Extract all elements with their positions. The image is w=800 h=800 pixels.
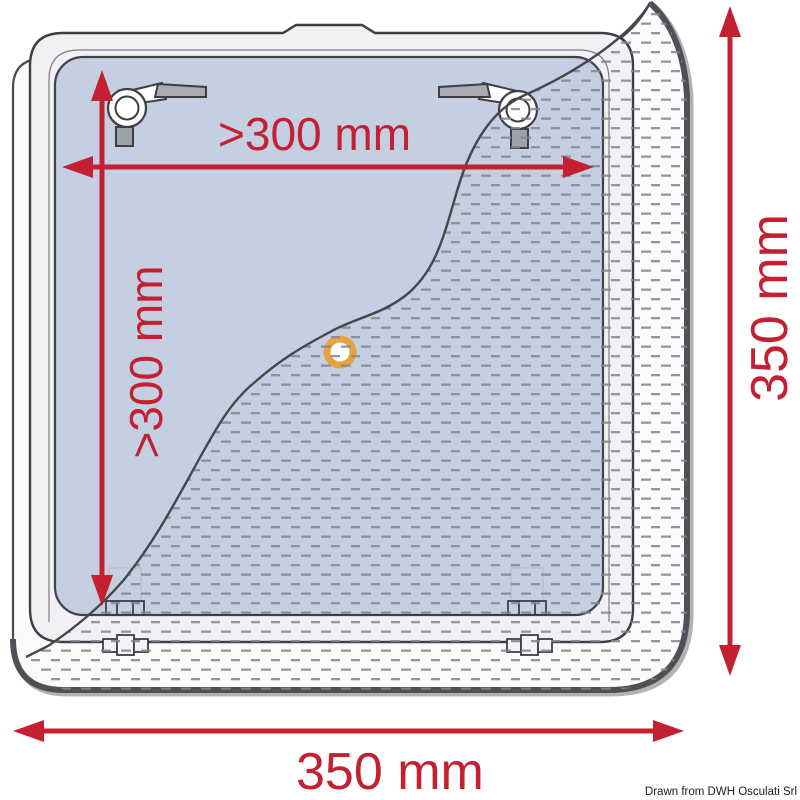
latch-right-lever xyxy=(439,84,490,97)
outer-width-label: 350 mm xyxy=(296,743,484,800)
arrowhead-left xyxy=(13,720,44,742)
hatch-installation-diagram: >300 mm >300 mm 350 mm 350 mm Drawn from… xyxy=(0,0,800,800)
latch-left-tab xyxy=(116,127,133,146)
inner-width-label: >300 mm xyxy=(218,108,411,160)
inner-height-label: >300 mm xyxy=(120,265,172,458)
arrowhead-up xyxy=(719,6,741,37)
watermark-credit: Drawn from DWH Osculati Srl xyxy=(645,786,797,798)
latch-left-lever xyxy=(155,84,206,97)
latch-left-ring-inner xyxy=(116,97,139,120)
diagram-canvas: >300 mm >300 mm 350 mm 350 mm Drawn from… xyxy=(0,0,800,800)
outer-height-label: 350 mm xyxy=(741,214,799,402)
dimension-outer-height: 350 mm xyxy=(719,6,799,676)
arrowhead-down xyxy=(719,645,741,676)
arrowhead-right xyxy=(653,720,684,742)
dimension-outer-width: 350 mm xyxy=(13,720,684,800)
